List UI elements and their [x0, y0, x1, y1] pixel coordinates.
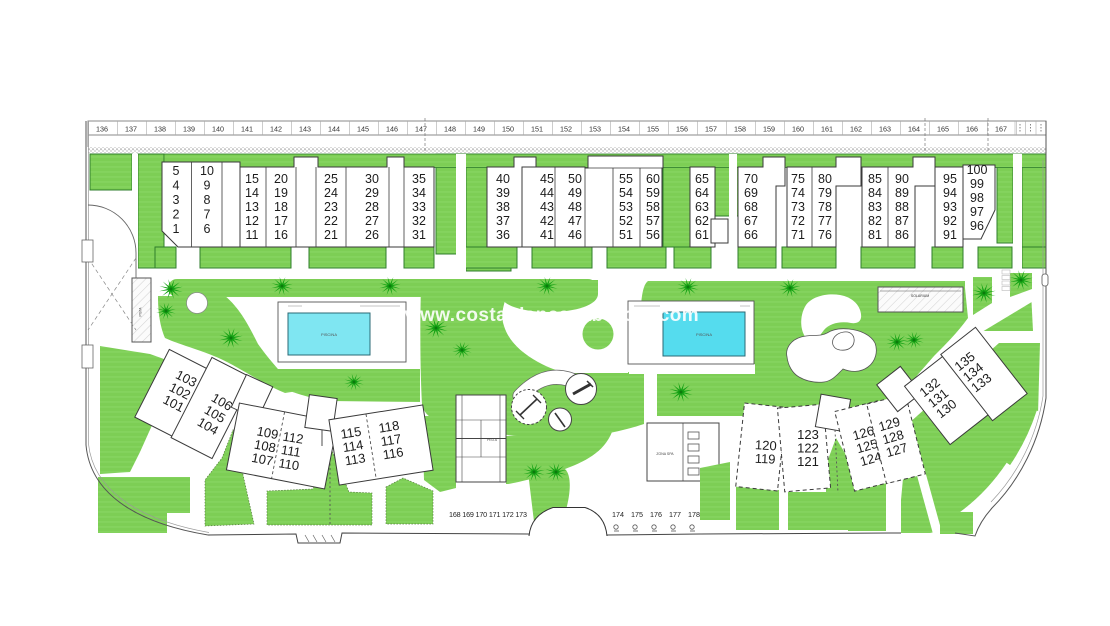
svg-text:9: 9 [204, 179, 211, 193]
svg-text:148: 148 [444, 125, 456, 134]
svg-text:34: 34 [412, 186, 426, 200]
svg-text:43: 43 [540, 200, 554, 214]
svg-text:98: 98 [970, 191, 984, 205]
svg-text:177: 177 [669, 510, 681, 519]
svg-text:www.costablancacaboroig.com: www.costablancacaboroig.com [404, 305, 699, 326]
svg-text:73: 73 [791, 200, 805, 214]
svg-text:79: 79 [818, 186, 832, 200]
svg-text:95: 95 [943, 172, 957, 186]
svg-text:29: 29 [365, 186, 379, 200]
svg-text:163: 163 [879, 125, 891, 134]
svg-text:110: 110 [277, 455, 300, 473]
svg-text:13: 13 [245, 200, 259, 214]
svg-text:49: 49 [568, 186, 582, 200]
svg-text:3: 3 [173, 193, 180, 207]
svg-text:PISTA: PISTA [139, 307, 143, 317]
svg-text:67: 67 [744, 214, 758, 228]
svg-text:64: 64 [695, 186, 709, 200]
svg-text:141: 141 [241, 125, 253, 134]
svg-text:72: 72 [791, 214, 805, 228]
svg-text:161: 161 [821, 125, 833, 134]
svg-text:16: 16 [274, 228, 288, 242]
svg-text:28: 28 [365, 200, 379, 214]
svg-text:36: 36 [496, 228, 510, 242]
svg-text:57: 57 [646, 214, 660, 228]
svg-text:8: 8 [204, 193, 211, 207]
svg-text:96: 96 [970, 219, 984, 233]
svg-text:83: 83 [868, 200, 882, 214]
svg-text:65: 65 [695, 172, 709, 186]
svg-text:24: 24 [324, 186, 338, 200]
svg-text:66: 66 [744, 228, 758, 242]
svg-text:176: 176 [650, 510, 662, 519]
svg-text:20: 20 [274, 172, 288, 186]
svg-text:150: 150 [502, 125, 514, 134]
svg-text:166: 166 [966, 125, 978, 134]
svg-text:146: 146 [386, 125, 398, 134]
svg-text:75: 75 [791, 172, 805, 186]
svg-text:91: 91 [943, 228, 957, 242]
svg-text:42: 42 [540, 214, 554, 228]
svg-text:27: 27 [365, 214, 379, 228]
svg-text:78: 78 [818, 200, 832, 214]
svg-text:4: 4 [173, 179, 180, 193]
svg-text:1: 1 [173, 222, 180, 236]
svg-text:100: 100 [967, 163, 988, 177]
svg-text:54: 54 [619, 186, 633, 200]
svg-text:121: 121 [797, 454, 819, 469]
svg-text:12: 12 [245, 214, 259, 228]
svg-text:175: 175 [631, 510, 643, 519]
svg-text:53: 53 [619, 200, 633, 214]
svg-text:39: 39 [496, 186, 510, 200]
svg-text:63: 63 [695, 200, 709, 214]
svg-text:140: 140 [212, 125, 224, 134]
svg-text:158: 158 [734, 125, 746, 134]
svg-text:21: 21 [324, 228, 338, 242]
svg-text:113: 113 [344, 450, 367, 468]
svg-text:55: 55 [619, 172, 633, 186]
svg-text:90: 90 [895, 172, 909, 186]
svg-text:93: 93 [943, 200, 957, 214]
svg-text:5: 5 [173, 164, 180, 178]
svg-text:50: 50 [568, 172, 582, 186]
svg-text:155: 155 [647, 125, 659, 134]
svg-text:149: 149 [473, 125, 485, 134]
svg-text:58: 58 [646, 200, 660, 214]
svg-text:26: 26 [365, 228, 379, 242]
svg-text:52: 52 [619, 214, 633, 228]
svg-text:35: 35 [412, 172, 426, 186]
svg-text:17: 17 [274, 214, 288, 228]
svg-text:11: 11 [246, 228, 259, 242]
svg-text:32: 32 [412, 214, 426, 228]
svg-text:41: 41 [540, 228, 554, 242]
svg-text:87: 87 [895, 214, 909, 228]
svg-text:151: 151 [531, 125, 543, 134]
svg-text:99: 99 [970, 177, 984, 191]
svg-text:SOLARIUM: SOLARIUM [911, 294, 929, 298]
svg-text:82: 82 [868, 214, 882, 228]
svg-text:19: 19 [274, 186, 288, 200]
svg-text:88: 88 [895, 200, 909, 214]
svg-text:47: 47 [568, 214, 582, 228]
svg-text:51: 51 [619, 228, 633, 242]
svg-text:59: 59 [646, 186, 660, 200]
svg-text:71: 71 [791, 228, 805, 242]
svg-text:153: 153 [589, 125, 601, 134]
svg-text:143: 143 [299, 125, 311, 134]
svg-text:74: 74 [791, 186, 805, 200]
svg-text:86: 86 [895, 228, 909, 242]
svg-text:84: 84 [868, 186, 882, 200]
svg-text:116: 116 [382, 444, 405, 462]
svg-text:6: 6 [204, 222, 211, 236]
svg-text:178: 178 [688, 510, 700, 519]
svg-text:159: 159 [763, 125, 775, 134]
svg-text:154: 154 [618, 125, 630, 134]
svg-text:97: 97 [970, 205, 984, 219]
svg-text:46: 46 [568, 228, 582, 242]
svg-text:76: 76 [818, 228, 832, 242]
svg-text:10: 10 [200, 164, 214, 178]
svg-text:145: 145 [357, 125, 369, 134]
svg-text:162: 162 [850, 125, 862, 134]
svg-text:138: 138 [154, 125, 166, 134]
svg-text:70: 70 [744, 172, 758, 186]
svg-text:25: 25 [324, 172, 338, 186]
svg-text:22: 22 [324, 214, 338, 228]
svg-text:7: 7 [204, 208, 211, 222]
svg-text:77: 77 [818, 214, 832, 228]
svg-text:85: 85 [868, 172, 882, 186]
svg-text:37: 37 [496, 214, 510, 228]
svg-text:62: 62 [695, 214, 709, 228]
svg-text:PISCINA: PISCINA [696, 332, 712, 337]
svg-text:60: 60 [646, 172, 660, 186]
svg-text:2: 2 [173, 208, 180, 222]
svg-text:69: 69 [744, 186, 758, 200]
svg-text:92: 92 [943, 214, 957, 228]
svg-text:157: 157 [705, 125, 717, 134]
svg-text:119: 119 [754, 451, 775, 467]
svg-text:14: 14 [245, 186, 259, 200]
svg-text:137: 137 [125, 125, 137, 134]
svg-text:94: 94 [943, 186, 957, 200]
svg-text:61: 61 [695, 228, 709, 242]
svg-text:142: 142 [270, 125, 282, 134]
svg-text:PISCINA: PISCINA [321, 332, 337, 337]
svg-text:38: 38 [496, 200, 510, 214]
svg-text:44: 44 [540, 186, 554, 200]
svg-text:18: 18 [274, 200, 288, 214]
svg-text:152: 152 [560, 125, 572, 134]
svg-text:156: 156 [676, 125, 688, 134]
svg-text:23: 23 [324, 200, 338, 214]
svg-text:168 169 170 171 172 173: 168 169 170 171 172 173 [449, 510, 527, 519]
svg-text:68: 68 [744, 200, 758, 214]
svg-text:165: 165 [937, 125, 949, 134]
svg-text:PISTA: PISTA [487, 438, 498, 442]
svg-text:80: 80 [818, 172, 832, 186]
svg-text:31: 31 [412, 228, 426, 242]
svg-text:40: 40 [496, 172, 510, 186]
svg-text:139: 139 [183, 125, 195, 134]
svg-text:45: 45 [540, 172, 554, 186]
svg-text:160: 160 [792, 125, 804, 134]
svg-text:164: 164 [908, 125, 920, 134]
svg-text:33: 33 [412, 200, 426, 214]
svg-text:15: 15 [245, 172, 259, 186]
svg-text:174: 174 [612, 510, 624, 519]
svg-text:144: 144 [328, 125, 340, 134]
svg-text:56: 56 [646, 228, 660, 242]
svg-text:136: 136 [96, 125, 108, 134]
svg-text:167: 167 [995, 125, 1007, 134]
svg-text:81: 81 [868, 228, 882, 242]
svg-text:30: 30 [365, 172, 379, 186]
svg-text:48: 48 [568, 200, 582, 214]
svg-text:ZONA SPA: ZONA SPA [656, 452, 674, 456]
svg-text:89: 89 [895, 186, 909, 200]
